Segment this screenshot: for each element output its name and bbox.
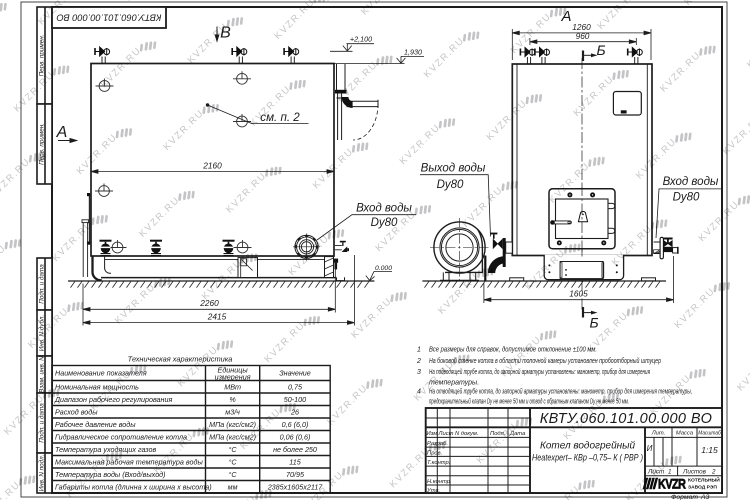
svg-text:Масса: Масса <box>676 431 694 437</box>
svg-text:KVZR.RU: KVZR.RU <box>186 21 231 66</box>
svg-text:Рабочее давление воды: Рабочее давление воды <box>55 420 136 429</box>
svg-text:KVZR.RU: KVZR.RU <box>0 243 9 288</box>
svg-text:960: 960 <box>576 31 590 41</box>
svg-text:Лист: Лист <box>438 431 454 437</box>
svg-text:не более 250: не более 250 <box>273 445 317 454</box>
svg-text:°С: °С <box>229 445 238 454</box>
svg-text:KVZR.RU: KVZR.RU <box>735 348 750 393</box>
svg-text:0,6 (6,0): 0,6 (6,0) <box>282 420 309 429</box>
svg-text:0,06 (0,6): 0,06 (0,6) <box>280 433 311 442</box>
svg-text:Взам. инв. N: Взам. инв. N <box>39 356 46 393</box>
svg-text:м3/ч: м3/ч <box>225 408 240 417</box>
svg-text:Подп. и дата: Подп. и дата <box>38 403 46 443</box>
svg-text:KVZR.RU: KVZR.RU <box>113 281 158 326</box>
svg-text:0,75: 0,75 <box>288 383 303 392</box>
svg-text:KVZR.RU: KVZR.RU <box>422 35 467 80</box>
svg-text:+2,100: +2,100 <box>350 35 372 44</box>
svg-text:115: 115 <box>289 458 301 467</box>
svg-text:1,930: 1,930 <box>404 47 422 56</box>
svg-text:KVZR.RU: KVZR.RU <box>398 122 443 167</box>
svg-text:N докум.: N докум. <box>455 431 478 437</box>
svg-text:Температура воды (Вход/выход): Температура воды (Вход/выход) <box>55 470 166 479</box>
svg-text:°С: °С <box>229 458 238 467</box>
svg-text:Подп. и дата: Подп. и дата <box>38 264 46 304</box>
svg-text:KVZR.RU: KVZR.RU <box>672 286 717 331</box>
svg-text:Котел водогрейный: Котел водогрейный <box>540 441 636 452</box>
svg-text:А: А <box>56 124 68 141</box>
svg-text:Н.контр.: Н.контр. <box>427 479 452 485</box>
svg-text:2160: 2160 <box>202 161 222 171</box>
svg-text:Dy80: Dy80 <box>673 192 700 204</box>
svg-text:1: 1 <box>417 347 421 354</box>
svg-text:KVZR.RU: KVZR.RU <box>721 112 750 157</box>
svg-text:KVZR.RU: KVZR.RU <box>50 219 95 264</box>
svg-text:Листов: Листов <box>682 469 707 476</box>
svg-text:Т.контр.: Т.контр. <box>427 460 450 466</box>
svg-text:0.000: 0.000 <box>375 265 392 272</box>
svg-text:На подводящей трубе котла, д: На подводящей трубе котла, до запорной а… <box>429 368 650 376</box>
svg-text:°С: °С <box>229 470 238 479</box>
svg-text:Б: Б <box>589 315 598 331</box>
svg-text:Формат: Формат <box>671 494 698 500</box>
svg-text:На отводящей трубе котла, до з: На отводящей трубе котла, до запорной ар… <box>429 388 692 396</box>
svg-text:KVZR.RU: KVZR.RU <box>745 25 750 70</box>
svg-text:Инв. N подл.: Инв. N подл. <box>38 455 46 492</box>
svg-text:70/95: 70/95 <box>286 470 305 479</box>
svg-text:KVZR.RU: KVZR.RU <box>0 156 33 201</box>
svg-text:KVZR.RU: KVZR.RU <box>176 344 221 389</box>
svg-text:KVZR.RU: KVZR.RU <box>460 185 505 230</box>
svg-text:КВТУ.060.101.00.000 ВО: КВТУ.060.101.00.000 ВО <box>540 411 713 427</box>
svg-text:KVZR.RU: KVZR.RU <box>373 209 418 254</box>
svg-text:Б: Б <box>596 42 605 58</box>
svg-text:1: 1 <box>668 469 672 476</box>
svg-text:ЗАВОД РЭП: ЗАВОД РЭП <box>688 484 717 490</box>
svg-text:Выход воды: Выход воды <box>421 163 486 175</box>
svg-text:Номинальная мощность: Номинальная мощность <box>55 383 139 392</box>
svg-text:KVZR.RU: KVZR.RU <box>349 296 394 341</box>
svg-text:KVZR: KVZR <box>658 477 686 492</box>
svg-text:Масштаб: Масштаб <box>698 431 721 437</box>
svg-text:измерения: измерения <box>215 372 251 381</box>
svg-text:2415: 2415 <box>207 311 227 321</box>
svg-text:мм: мм <box>228 483 238 492</box>
svg-text:Перв. примен.: Перв. примен. <box>39 35 46 77</box>
svg-text:И: И <box>647 444 653 453</box>
svg-text:Вход воды: Вход воды <box>663 176 719 188</box>
svg-text:2: 2 <box>711 469 716 476</box>
svg-text:Изм: Изм <box>427 431 438 437</box>
svg-text:KVZR.RU: KVZR.RU <box>325 382 370 427</box>
svg-text:Значение: Значение <box>279 369 311 378</box>
svg-text:1:15: 1:15 <box>701 445 718 455</box>
svg-text:%: % <box>229 395 236 404</box>
svg-text:Лит.: Лит. <box>651 431 666 437</box>
svg-text:50-100: 50-100 <box>284 395 306 404</box>
svg-text:МПа (кгс/см2): МПа (кгс/см2) <box>209 420 256 429</box>
svg-text:Heatexpert– КВр –0,75– К ( РВР: Heatexpert– КВр –0,75– К ( РВР ) <box>532 453 643 463</box>
svg-text:KVZR.RU: KVZR.RU <box>359 0 404 18</box>
svg-text:KVZR.RU: KVZR.RU <box>595 0 640 32</box>
svg-text:Температура уходящих газов: Температура уходящих газов <box>55 445 157 454</box>
svg-text:Вход воды: Вход воды <box>356 203 412 215</box>
svg-text:Утв.: Утв. <box>426 488 440 494</box>
svg-text:1605: 1605 <box>569 289 588 299</box>
svg-text:KVZR.RU: KVZR.RU <box>658 49 703 94</box>
svg-text:Dy80: Dy80 <box>437 179 464 191</box>
svg-text:Все размеры для справок, допус: Все размеры для справок, допустимое откл… <box>429 346 597 354</box>
svg-text:3: 3 <box>417 369 421 376</box>
svg-text:КВТУ.060.101.00.000 ВО: КВТУ.060.101.00.000 ВО <box>57 13 162 23</box>
svg-text:А3: А3 <box>700 494 710 500</box>
svg-text:KVZR.RU: KVZR.RU <box>200 257 245 302</box>
svg-text:KVZR.RU: KVZR.RU <box>335 59 380 104</box>
svg-text:KVZR.RU: KVZR.RU <box>697 199 742 244</box>
svg-text:2385х1605х2117: 2385х1605х2117 <box>267 483 324 492</box>
svg-text:Максимальная рабочая температу: Максимальная рабочая температура воды <box>55 458 203 467</box>
svg-text:2: 2 <box>416 358 421 365</box>
svg-text:KVZR.RU: KVZR.RU <box>262 320 307 365</box>
svg-text:МВт: МВт <box>224 383 241 392</box>
svg-text:Гидравлическое сопротивление к: Гидравлическое сопротивление котла <box>55 433 187 442</box>
